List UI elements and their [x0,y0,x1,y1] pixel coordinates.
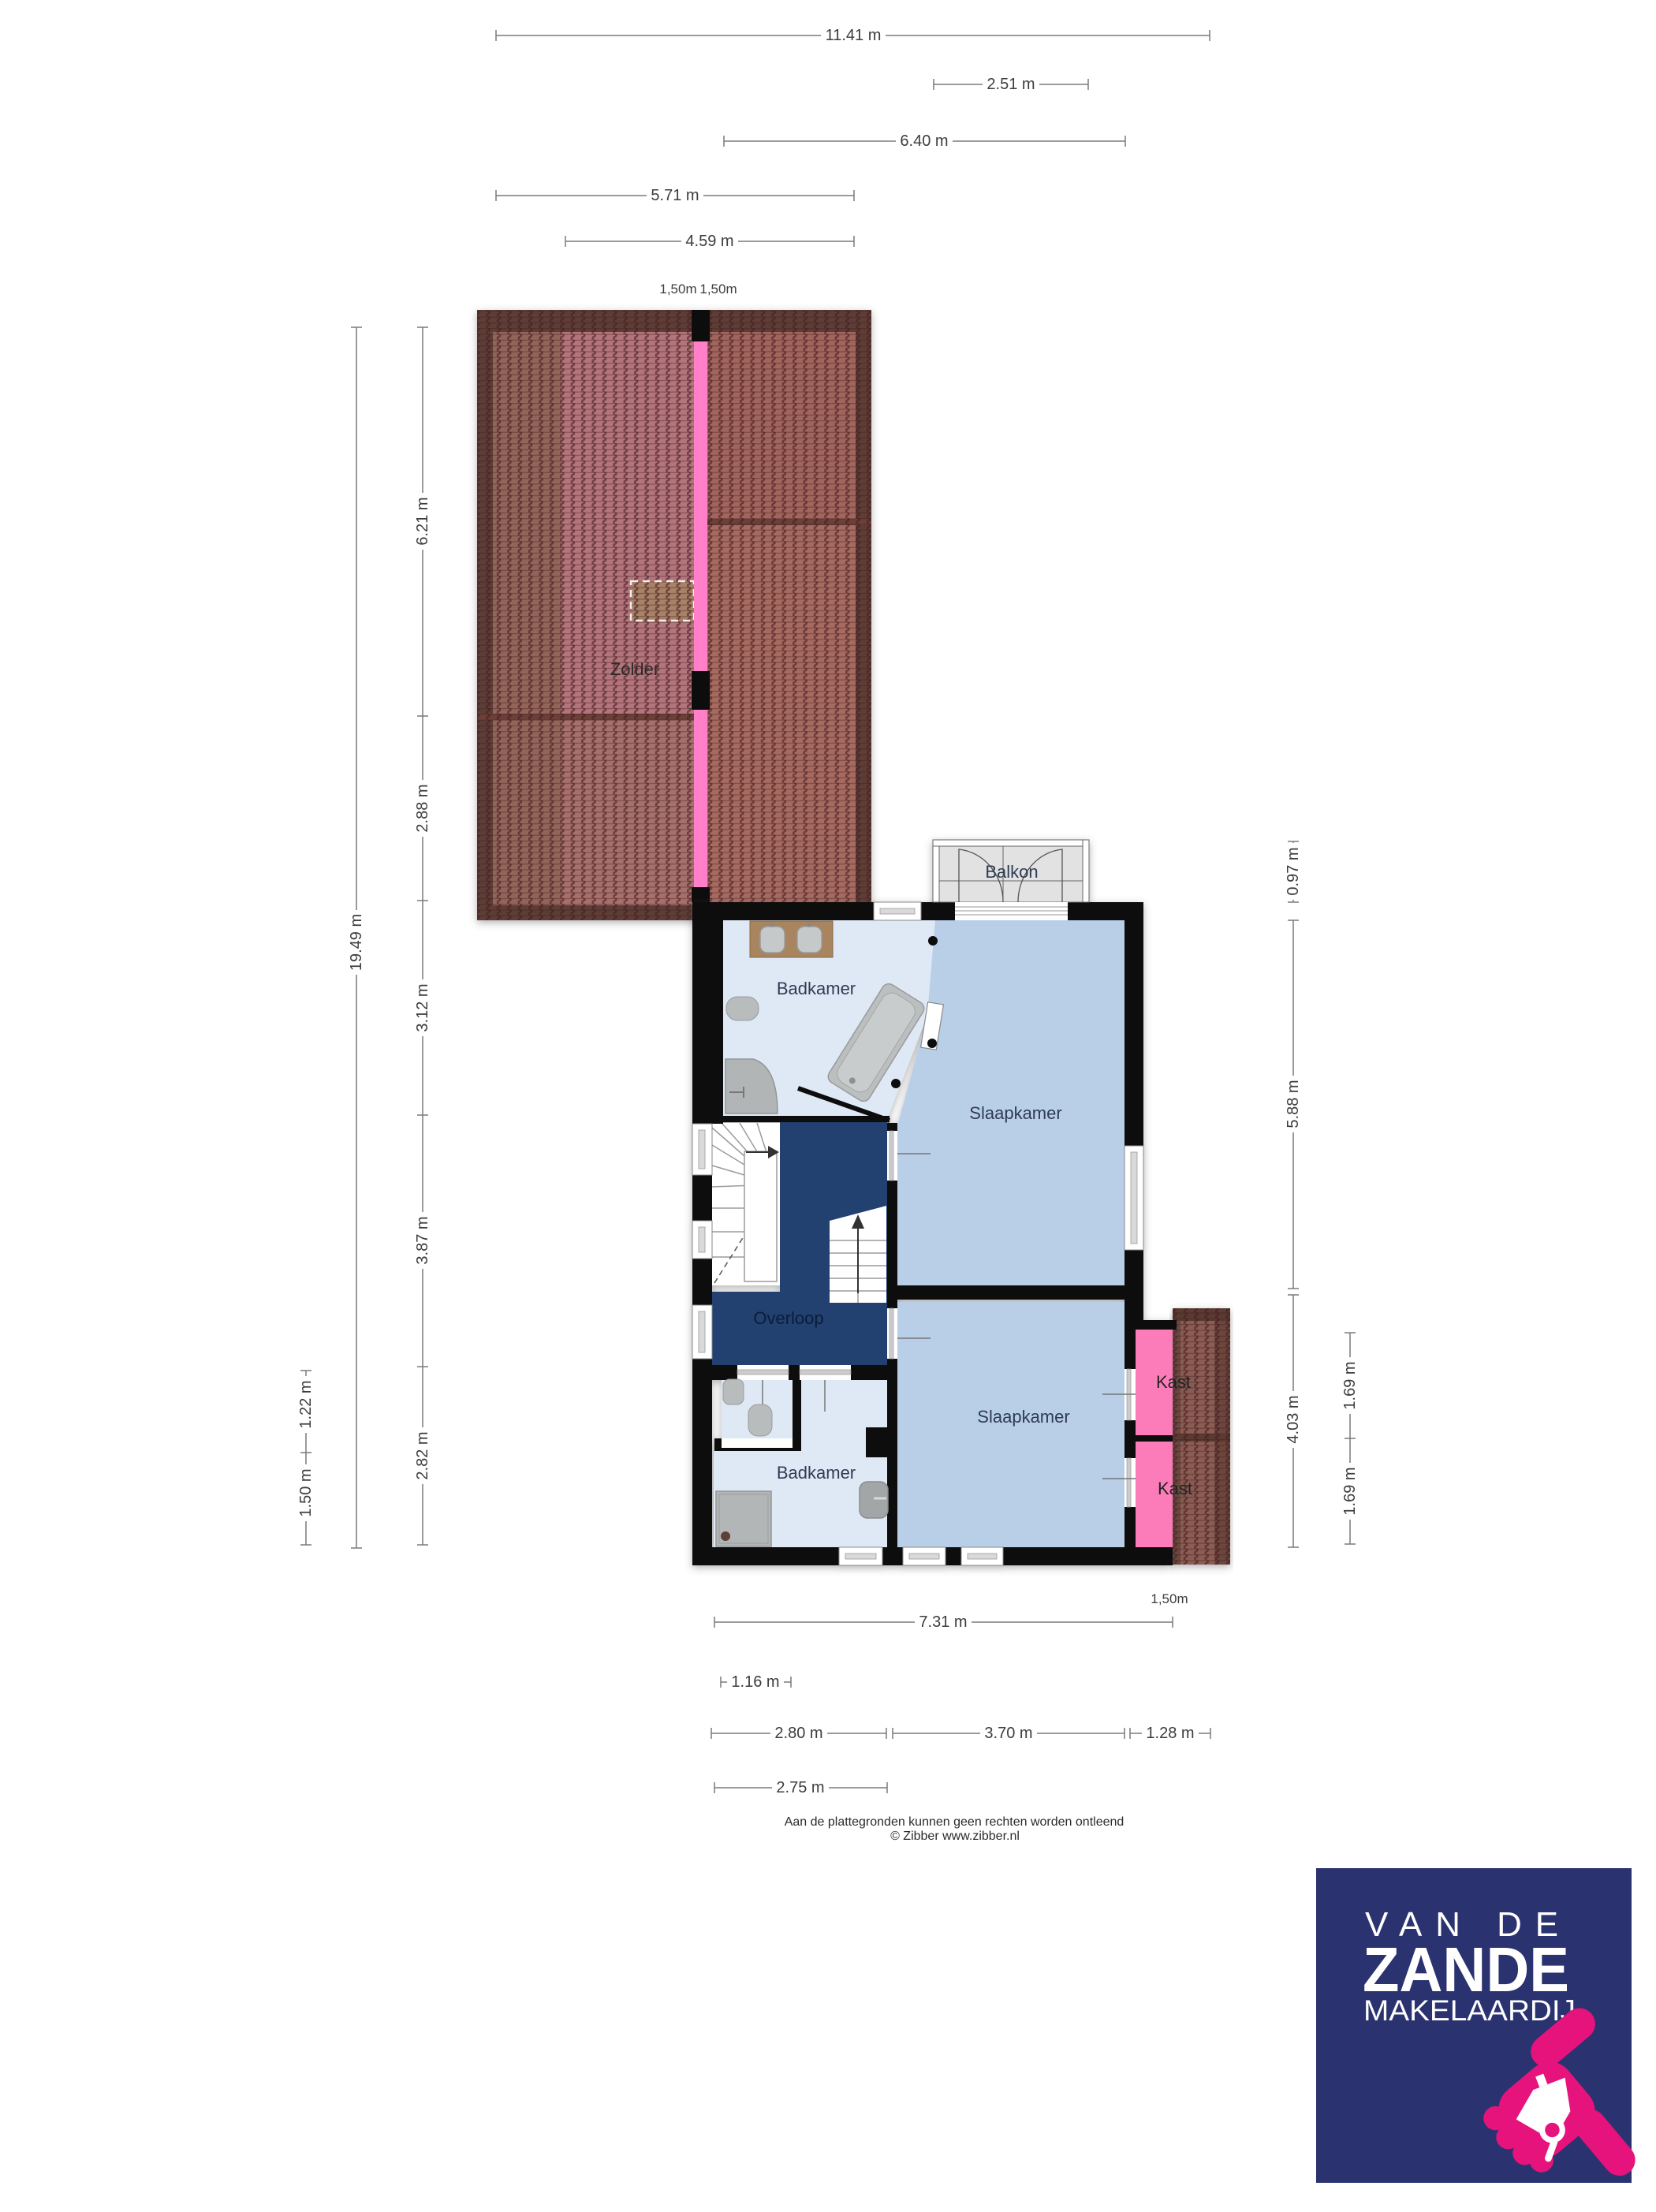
svg-text:11.41 m: 11.41 m [826,27,882,44]
svg-text:2.51 m: 2.51 m [987,76,1035,93]
svg-text:4.59 m: 4.59 m [685,233,733,250]
svg-text:Overloop: Overloop [753,1308,823,1328]
svg-text:Zolder: Zolder [610,659,659,679]
svg-text:4.03 m: 4.03 m [1285,1395,1302,1443]
svg-text:1,50m: 1,50m [1151,1591,1188,1606]
svg-text:2.80 m: 2.80 m [774,1725,822,1742]
svg-text:3.12 m: 3.12 m [414,983,431,1031]
svg-text:6.21 m: 6.21 m [414,497,431,545]
svg-text:5.88 m: 5.88 m [1285,1080,1302,1128]
svg-text:1.69 m: 1.69 m [1341,1361,1359,1409]
svg-text:2.88 m: 2.88 m [414,784,431,832]
svg-text:1.22 m: 1.22 m [297,1380,315,1428]
svg-text:MAKELAARDIJ: MAKELAARDIJ [1363,1994,1576,2027]
svg-text:Kast: Kast [1158,1479,1192,1498]
svg-text:1.69 m: 1.69 m [1341,1467,1359,1515]
svg-text:1.16 m: 1.16 m [731,1673,779,1691]
svg-text:7.31 m: 7.31 m [919,1613,967,1631]
svg-text:Balkon: Balkon [985,862,1038,882]
svg-text:2.82 m: 2.82 m [414,1431,431,1479]
svg-text:Badkamer: Badkamer [777,979,856,998]
svg-text:0.97 m: 0.97 m [1285,847,1302,895]
svg-text:2.75 m: 2.75 m [776,1779,824,1796]
svg-text:1,50m: 1,50m [699,282,737,297]
svg-text:1.28 m: 1.28 m [1146,1725,1194,1742]
svg-text:1.50 m: 1.50 m [297,1468,315,1516]
svg-text:3.87 m: 3.87 m [414,1216,431,1264]
svg-text:6.40 m: 6.40 m [900,132,948,150]
svg-text:© Zibber www.zibber.nl: © Zibber www.zibber.nl [890,1830,1020,1843]
svg-text:Slaapkamer: Slaapkamer [969,1103,1061,1123]
svg-text:Badkamer: Badkamer [777,1463,856,1483]
svg-text:5.71 m: 5.71 m [651,187,699,204]
svg-text:Slaapkamer: Slaapkamer [977,1407,1069,1427]
svg-text:Kast: Kast [1156,1372,1191,1392]
svg-text:Aan de plattegronden kunnen ge: Aan de plattegronden kunnen geen rechten… [785,1815,1125,1829]
svg-text:1,50m: 1,50m [659,282,696,297]
svg-text:3.70 m: 3.70 m [984,1725,1032,1742]
svg-text:19.49 m: 19.49 m [348,914,365,971]
